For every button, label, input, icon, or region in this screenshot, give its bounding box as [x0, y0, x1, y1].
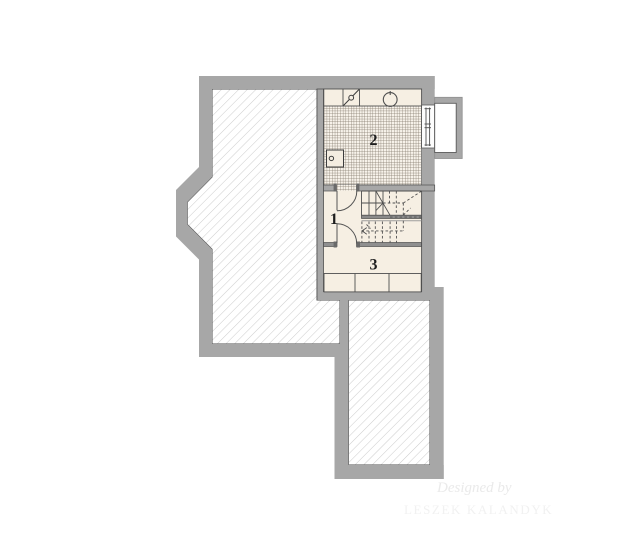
- svg-text:LESZEK KALANDYK: LESZEK KALANDYK: [404, 502, 553, 517]
- svg-text:3: 3: [370, 257, 378, 274]
- svg-text:Designed by: Designed by: [436, 480, 512, 496]
- svg-text:2: 2: [370, 132, 378, 149]
- svg-text:1: 1: [330, 211, 338, 228]
